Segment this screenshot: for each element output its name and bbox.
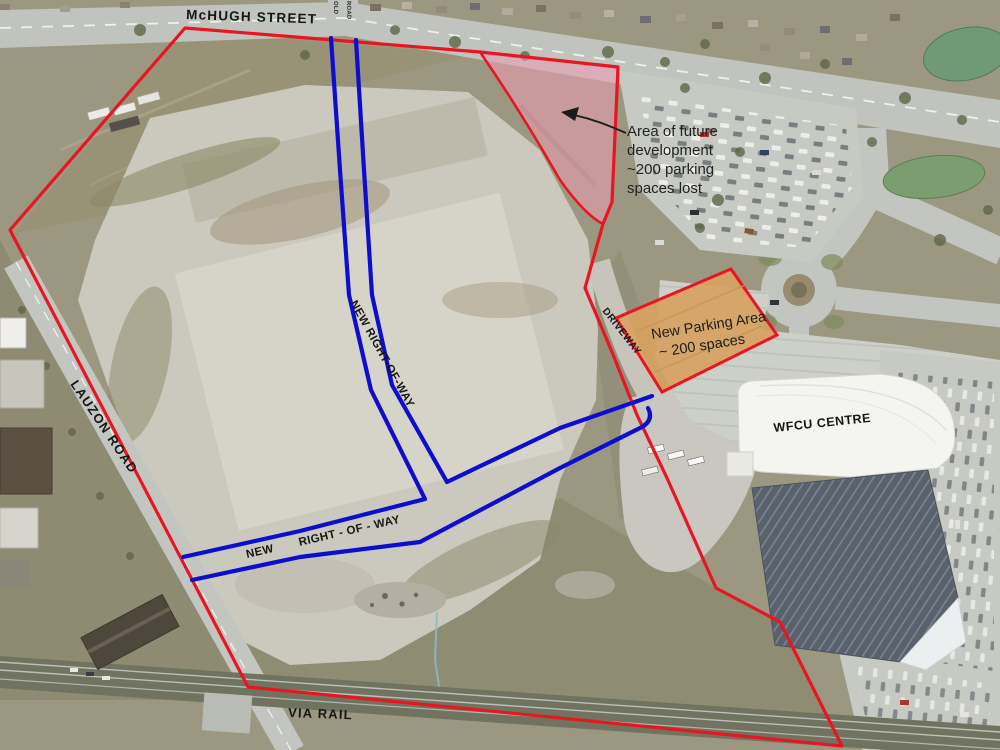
site-plan-map: Area of future development ~200 parking … <box>0 0 1000 750</box>
future-dev-line2: development <box>627 142 714 159</box>
future-dev-line4: spaces lost <box>627 180 703 197</box>
old-road-label-1: OLD <box>332 1 338 15</box>
via-rail-label: VIA RAIL <box>288 705 353 722</box>
arena-secondary-building <box>752 470 966 670</box>
old-road-label-2: ROAD <box>345 1 351 20</box>
aerial-map-canvas: Area of future development ~200 parking … <box>0 0 1000 750</box>
future-dev-line3: ~200 parking <box>627 161 714 178</box>
rail-crossing <box>202 692 253 733</box>
future-dev-line1: Area of future <box>627 123 718 140</box>
